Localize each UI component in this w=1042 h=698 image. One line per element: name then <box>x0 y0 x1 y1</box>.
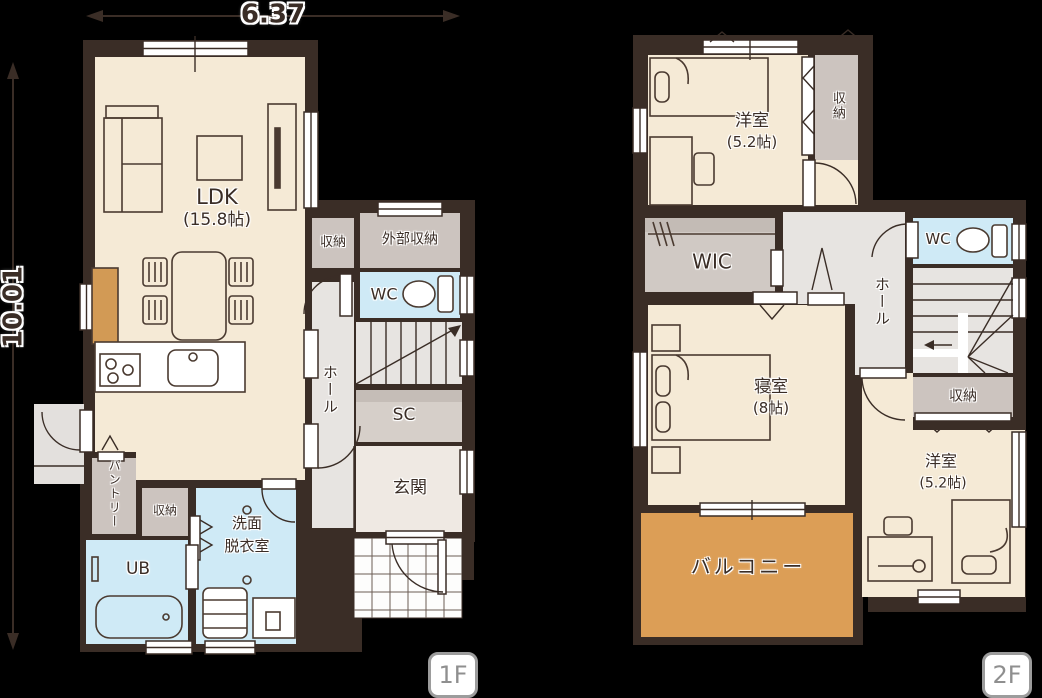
room-label-closet-right: 収納 <box>949 390 977 405</box>
room-label-wc2: WC <box>925 232 950 248</box>
floorplan-drawing <box>0 0 1042 698</box>
room-label-sc: SC <box>393 407 416 425</box>
floor2-badge: 2F <box>982 652 1032 698</box>
room-master <box>648 305 845 505</box>
room-label-pantry: パントリー <box>108 459 121 529</box>
room-ub <box>86 540 188 644</box>
room-label-wic: WIC <box>692 252 732 273</box>
room-label-ldk: LDK <box>196 186 238 208</box>
room-label-master: 寝室 <box>754 379 788 397</box>
floorplan-canvas: 6.37 10.01 LDK (15.8帖) 収納 外部収納 WC ホール SC… <box>0 0 1042 698</box>
room-label-ldk-size: (15.8帖) <box>183 212 251 230</box>
room-label-entrance: 玄関 <box>393 480 427 498</box>
room-label-hall1: ホール <box>321 365 337 416</box>
toilet-tank-2f <box>992 225 1007 257</box>
sink <box>168 350 218 386</box>
dimension-height: 10.01 <box>0 266 27 348</box>
room-label-wc1: WC <box>371 287 398 304</box>
room-label-bedroom-bottom-size: (5.2帖) <box>919 477 966 492</box>
toilet-bowl-1f <box>403 281 435 307</box>
room-label-washroom-2: 脱衣室 <box>224 539 269 555</box>
washing-machine <box>203 588 247 638</box>
kitchen-cabinet <box>92 268 118 344</box>
room-label-hall2: ホール <box>873 277 889 328</box>
room-label-closet-bottom: 収納 <box>153 505 177 518</box>
room-label-ub: UB <box>126 561 150 579</box>
room-label-closet-top: 収納 <box>830 91 844 121</box>
room-label-balcony: バルコニー <box>691 557 806 578</box>
washbasin <box>253 598 295 638</box>
room-label-bedroom-top-size: (5.2帖) <box>727 135 778 151</box>
room-label-master-size: (8帖) <box>753 401 789 417</box>
dimension-width: 6.37 <box>241 1 305 28</box>
room-label-closet-mid: 収納 <box>320 236 346 250</box>
toilet-bowl-2f <box>957 228 989 252</box>
toilet-tank-1f <box>438 276 453 312</box>
room-label-washroom-1: 洗面 <box>232 516 262 532</box>
floor1-badge: 1F <box>428 652 478 698</box>
room-ldk <box>95 57 305 480</box>
room-label-bedroom-top: 洋室 <box>735 113 769 131</box>
room-label-bedroom-bottom: 洋室 <box>925 454 957 471</box>
room-label-exterior-storage: 外部収納 <box>382 233 438 248</box>
